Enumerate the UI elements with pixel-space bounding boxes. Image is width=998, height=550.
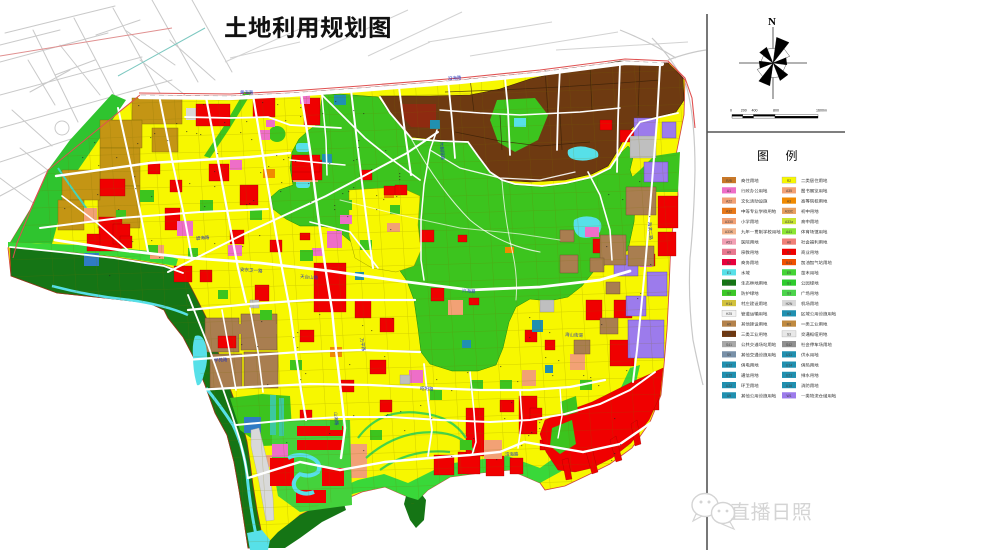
svg-text:A33X: A33X [725, 220, 734, 224]
svg-text:A33a: A33a [785, 220, 793, 224]
svg-text:S9: S9 [727, 353, 731, 357]
svg-text:A9: A9 [727, 251, 731, 255]
svg-text:H2N: H2N [786, 302, 793, 306]
svg-text:A35: A35 [786, 189, 792, 193]
svg-text:H9: H9 [727, 322, 731, 326]
svg-text:H3: H3 [787, 312, 791, 316]
svg-text:B41: B41 [786, 261, 792, 265]
svg-text:W1: W1 [786, 394, 791, 398]
svg-text:A33K: A33K [725, 230, 734, 234]
svg-text:200: 200 [741, 109, 747, 113]
svg-text:U9: U9 [727, 394, 731, 398]
svg-text:U14: U14 [786, 363, 792, 367]
svg-text:A1: A1 [727, 189, 731, 193]
svg-text:G1: G1 [787, 281, 792, 285]
svg-text:A6: A6 [787, 240, 791, 244]
svg-text:E1: E1 [727, 271, 731, 275]
svg-text:B1: B1 [787, 251, 791, 255]
svg-text:A3: A3 [787, 199, 791, 203]
svg-text:E9: E9 [787, 271, 791, 275]
svg-text:1600m: 1600m [816, 109, 827, 113]
svg-text:400: 400 [752, 109, 758, 113]
svg-text:S41: S41 [726, 343, 732, 347]
svg-text:G2: G2 [727, 292, 732, 296]
svg-text:E2: E2 [727, 281, 731, 285]
svg-text:U15: U15 [726, 374, 732, 378]
svg-text:U16: U16 [786, 384, 792, 388]
svg-text:A32: A32 [726, 210, 732, 214]
svg-text:0: 0 [730, 109, 732, 113]
svg-text:A22: A22 [726, 199, 732, 203]
svg-text:M1: M1 [787, 322, 792, 326]
svg-text:H25: H25 [726, 312, 732, 316]
svg-text:R2: R2 [787, 179, 791, 183]
svg-text:U11: U11 [786, 353, 792, 357]
svg-text:A33C: A33C [785, 210, 794, 214]
svg-text:U12: U12 [726, 363, 732, 367]
svg-text:A41: A41 [786, 230, 792, 234]
svg-text:U21: U21 [786, 374, 792, 378]
svg-text:S3: S3 [787, 333, 791, 337]
svg-text:B2: B2 [727, 261, 731, 265]
svg-text:U22: U22 [726, 384, 732, 388]
svg-text:R/B: R/B [726, 179, 732, 183]
svg-text:N: N [768, 16, 776, 28]
svg-text:800: 800 [773, 109, 779, 113]
svg-text:G3: G3 [787, 292, 792, 296]
svg-text:A51: A51 [726, 240, 732, 244]
svg-text:H14: H14 [726, 302, 732, 306]
svg-text:M2: M2 [727, 333, 732, 337]
svg-text:S42: S42 [786, 343, 792, 347]
